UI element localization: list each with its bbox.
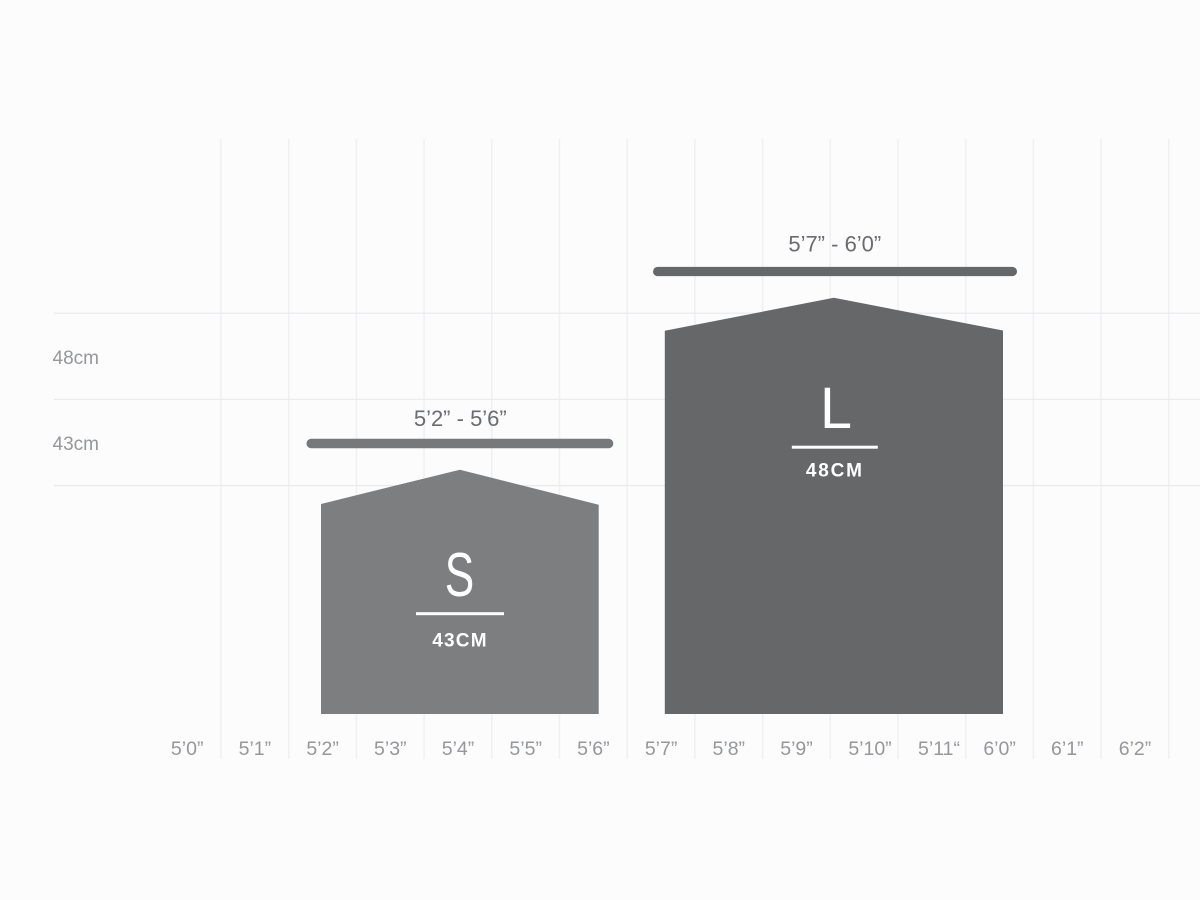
svg-text:5’11“: 5’11“ [918, 738, 960, 760]
svg-text:5’3”: 5’3” [374, 738, 407, 760]
svg-text:5’0”: 5’0” [171, 738, 204, 760]
svg-text:S: S [445, 541, 475, 610]
svg-text:5’7” - 6’0”: 5’7” - 6’0” [788, 232, 881, 257]
svg-text:5’6”: 5’6” [577, 738, 610, 760]
svg-text:43CM: 43CM [432, 631, 487, 652]
svg-text:48cm: 48cm [53, 348, 99, 369]
svg-text:6’0”: 6’0” [983, 738, 1016, 760]
svg-text:L: L [820, 376, 852, 441]
svg-text:48CM: 48CM [806, 461, 864, 482]
svg-text:5’2” - 5’6”: 5’2” - 5’6” [414, 406, 507, 431]
svg-text:5’1”: 5’1” [239, 738, 272, 760]
svg-text:6’2”: 6’2” [1119, 738, 1152, 760]
svg-text:5’7”: 5’7” [645, 738, 678, 760]
svg-text:6’1”: 6’1” [1051, 738, 1084, 760]
svg-text:43cm: 43cm [53, 434, 99, 455]
svg-text:5’5”: 5’5” [509, 738, 542, 760]
svg-text:5’10”: 5’10” [848, 738, 891, 760]
svg-text:5’8”: 5’8” [713, 738, 746, 760]
svg-text:5’9”: 5’9” [780, 738, 813, 760]
svg-text:5’4”: 5’4” [442, 738, 475, 760]
svg-text:5’2”: 5’2” [306, 738, 339, 760]
